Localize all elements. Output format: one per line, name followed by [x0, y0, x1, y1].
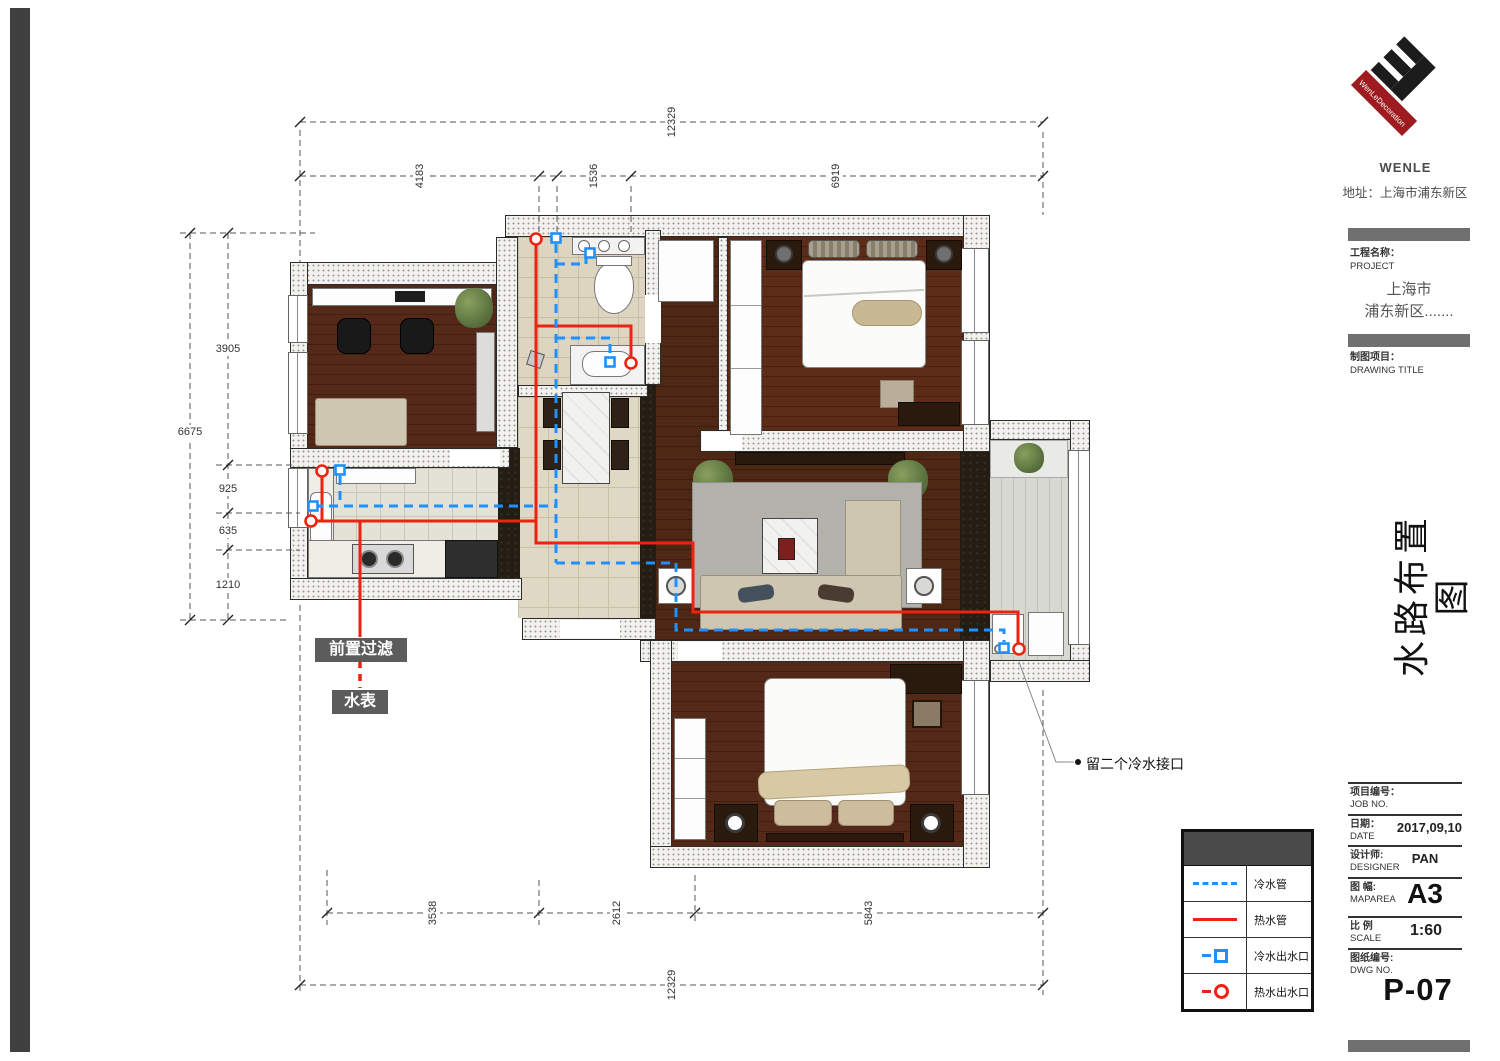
cold-outlet-symbol [1184, 938, 1247, 973]
study-cabinet [476, 332, 495, 432]
dwg-no-label-cn: 图纸编号: [1350, 953, 1393, 965]
wall [650, 640, 672, 868]
dining-table [562, 392, 610, 484]
panel-row-line [1348, 845, 1462, 847]
window [961, 248, 989, 333]
wardrobe-shelf-line [675, 758, 705, 759]
date-label-cn: 日期： [1350, 819, 1380, 831]
dining-chair [543, 440, 561, 470]
window [1068, 450, 1090, 645]
window [288, 352, 308, 434]
bed-pillow [774, 800, 832, 826]
dim-left-overall: 6675 [170, 425, 210, 439]
window [288, 295, 308, 343]
drawing-sheet: WenLeDecoration 12329 4183 1536 6919 667… [0, 0, 1500, 1061]
stove-burner [360, 550, 378, 568]
dim-bottom-seg2: 2612 [610, 890, 624, 936]
designer-label-cn: 设计师: [1350, 850, 1383, 862]
wardrobe-shelf-line [731, 368, 761, 369]
door-opening [450, 450, 500, 466]
sheet-number: P-07 [1368, 972, 1468, 1008]
company-address: 地址：上海市浦东新区 [1330, 182, 1480, 201]
water-meter-label: 水表 [332, 690, 388, 714]
date-value: 2017,09,10 [1390, 820, 1462, 835]
marble-strip-balcony [960, 452, 990, 640]
bed-pillow [838, 800, 894, 826]
wall [505, 215, 990, 237]
wall [290, 262, 512, 285]
legend-row-cold-pipe: 冷水管 [1184, 866, 1311, 902]
speaker [921, 813, 941, 833]
bedroom1-console [898, 402, 960, 426]
dim-top-seg3: 6919 [829, 153, 843, 199]
drawing-title-label-cn: 制图项目： [1350, 352, 1400, 364]
brand-name: WENLE [1348, 160, 1463, 175]
speaker [725, 813, 745, 833]
door-opening [645, 295, 661, 343]
project-label-en: PROJECT [1350, 261, 1394, 273]
plant [1014, 443, 1044, 473]
cold-pipe-symbol [1184, 866, 1247, 901]
laptop [395, 291, 425, 302]
dining-chair [611, 398, 629, 428]
bed-throw [852, 300, 922, 326]
pre-filter-label: 前置过滤 [315, 638, 407, 662]
wall [650, 846, 990, 868]
dim-left-seg2: 925 [208, 482, 248, 496]
panel-divider-bar [1348, 334, 1470, 347]
designer-label-en: DESIGNER [1350, 862, 1400, 874]
legend-label: 冷水出水口 [1247, 948, 1311, 964]
tv-console [735, 452, 905, 465]
wall [496, 237, 518, 448]
dim-top-seg1: 4183 [413, 153, 427, 199]
kitchen-sink [310, 492, 332, 544]
scale-value: 1:60 [1398, 922, 1454, 940]
drain [994, 644, 1004, 654]
speaker [666, 576, 686, 596]
bed-pillow [866, 240, 918, 258]
study-sofa [315, 398, 407, 446]
bedroom1-wardrobe [730, 240, 762, 435]
sofa-chaise [845, 500, 901, 582]
washing-machine [1028, 612, 1064, 656]
toilet-tank [596, 256, 632, 266]
panel-row-line [1348, 916, 1462, 918]
legend-row-hot-pipe: 热水管 [1184, 902, 1311, 938]
vanity-bowl [578, 240, 590, 252]
window [288, 468, 308, 528]
legend-row-hot-outlet: 热水出水口 [1184, 974, 1311, 1009]
map-area-value: A3 [1395, 878, 1455, 910]
window [961, 680, 989, 795]
legend-label: 冷水管 [1247, 876, 1311, 892]
dim-bottom-overall: 12329 [665, 962, 679, 1008]
legend-row-cold-outlet: 冷水出水口 [1184, 938, 1311, 974]
wall [290, 578, 522, 600]
living-sofa [700, 575, 902, 630]
legend-label: 热水出水口 [1247, 984, 1311, 1000]
speaker [775, 245, 793, 263]
designer-value: PAN [1400, 851, 1450, 866]
dim-bottom-seg3: 5843 [862, 890, 876, 936]
dim-left-seg1: 3905 [208, 342, 248, 356]
washbasin-sink [582, 351, 632, 377]
dim-bottom-seg1: 3538 [426, 890, 440, 936]
speaker [935, 245, 953, 263]
dining-chair [611, 440, 629, 470]
marble-strip-dining [640, 385, 656, 640]
dim-top-overall: 12329 [665, 99, 679, 145]
bed-pillow [808, 240, 860, 258]
stool [912, 700, 942, 728]
kitchen-top-cabinet [336, 468, 416, 484]
dim-left-seg4: 1210 [208, 578, 248, 592]
hall-closet [658, 240, 714, 302]
map-area-label-en: MAPAREA [1350, 894, 1396, 906]
panel-row-line [1348, 814, 1462, 816]
left-margin-bar [10, 8, 30, 1052]
drawing-title-vertical: 水路布置图 [1392, 495, 1432, 695]
coffee-table-books [778, 538, 795, 560]
legend-box: 冷水管 热水管 冷水出水口 热水出水口 [1181, 829, 1314, 1012]
wardrobe-shelf-line [675, 798, 705, 799]
scale-label-en: SCALE [1350, 933, 1381, 945]
hot-pipe-symbol [1184, 902, 1247, 937]
date-label-en: DATE [1350, 831, 1375, 843]
wardrobe-shelf-line [731, 305, 761, 306]
plant [455, 288, 493, 328]
dim-left-seg3: 635 [208, 524, 248, 538]
toilet [594, 262, 634, 314]
logo-diagonal-text: WenLeDecoration [1357, 78, 1407, 128]
vanity-bowl [598, 240, 610, 252]
panel-row-line [1348, 948, 1462, 950]
office-chair [400, 318, 434, 354]
project-value-line1: 上海市 [1348, 278, 1470, 299]
legend-label: 热水管 [1247, 912, 1311, 928]
vanity-bowl [618, 240, 630, 252]
drawing-title-label-en: DRAWING TITLE [1350, 365, 1424, 377]
fridge [445, 540, 498, 578]
scale-label-cn: 比 例 [1350, 921, 1373, 933]
bed-foot-bench [766, 833, 904, 842]
door-opening [678, 642, 722, 660]
dim-top-seg2: 1536 [587, 153, 601, 199]
office-chair [337, 318, 371, 354]
dining-chair [543, 398, 561, 428]
window [961, 340, 989, 425]
panel-row-line [1348, 782, 1462, 784]
hot-outlet-symbol [1184, 974, 1247, 1009]
wall [990, 660, 1090, 682]
panel-bottom-bar [1348, 1040, 1470, 1052]
door-opening [560, 620, 620, 638]
map-area-label-cn: 图 幅: [1350, 882, 1376, 894]
panel-divider-bar [1348, 228, 1470, 241]
cold-note-label: 留二个冷水接口 [1086, 754, 1184, 774]
bedroom2-wardrobe [674, 718, 706, 840]
company-logo: WenLeDecoration [1351, 34, 1453, 136]
project-value-line2: 浦东新区....... [1335, 300, 1483, 321]
legend-header [1184, 832, 1311, 866]
job-no-label-en: JOB NO. [1350, 799, 1388, 811]
speaker [914, 576, 934, 596]
project-label-cn: 工程名称： [1350, 248, 1400, 260]
stove-burner [386, 550, 404, 568]
wall [718, 237, 728, 432]
job-no-label-cn: 项目编号： [1350, 787, 1400, 799]
